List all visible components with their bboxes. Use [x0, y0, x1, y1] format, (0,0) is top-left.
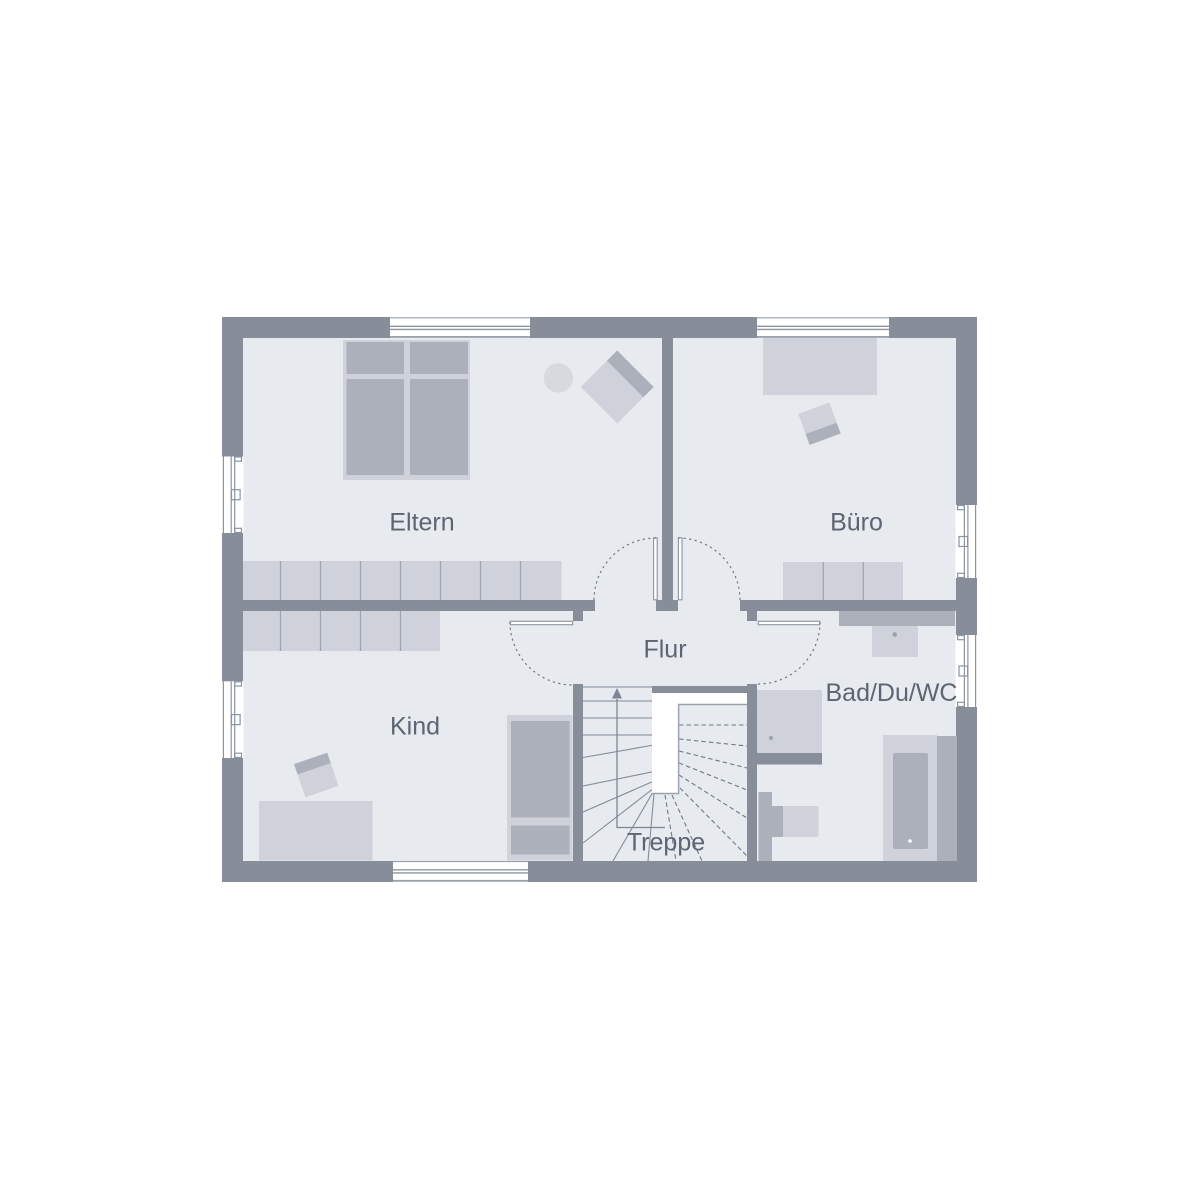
svg-text:Kind: Kind	[390, 713, 440, 741]
svg-text:Bad/Du/WC: Bad/Du/WC	[826, 679, 958, 707]
svg-text:Eltern: Eltern	[389, 509, 454, 537]
svg-text:Treppe: Treppe	[627, 829, 705, 857]
svg-text:Flur: Flur	[643, 636, 686, 664]
svg-text:Büro: Büro	[830, 509, 883, 537]
